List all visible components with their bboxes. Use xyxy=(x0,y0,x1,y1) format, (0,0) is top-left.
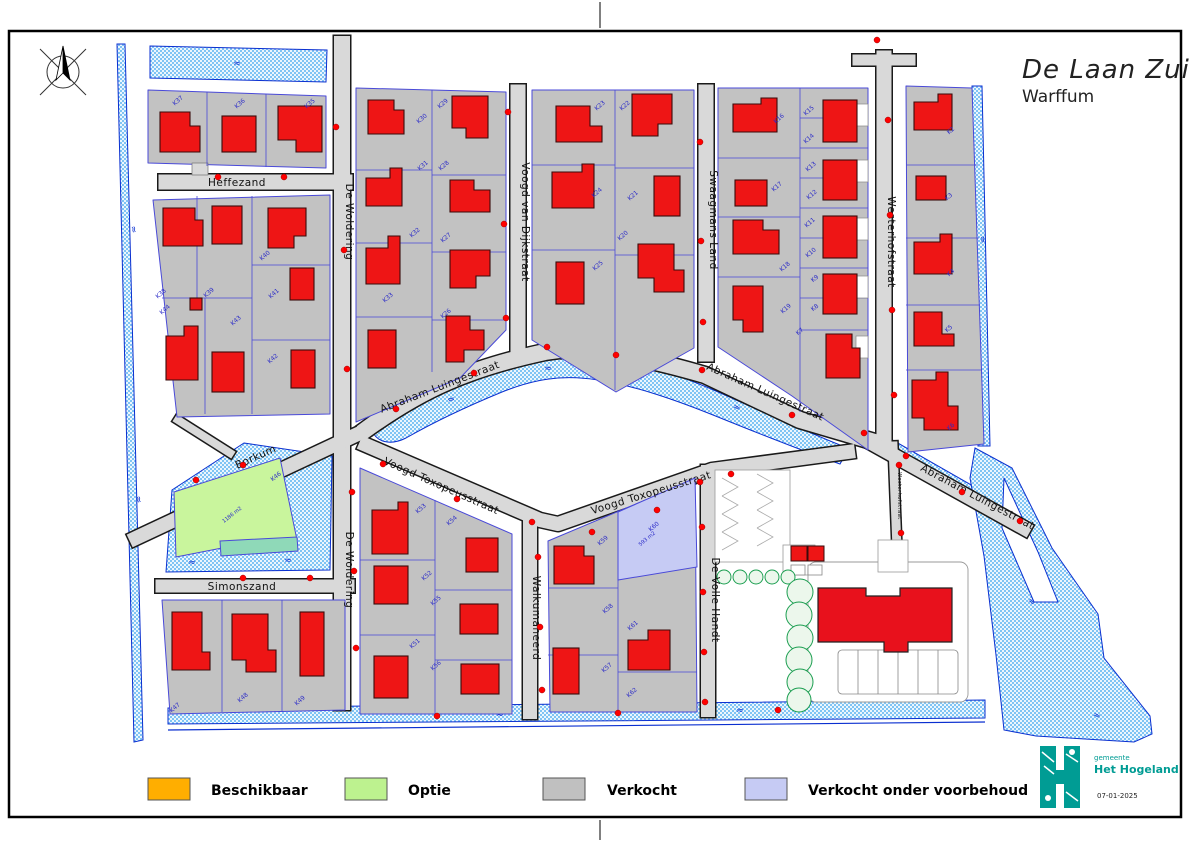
svg-text:≈: ≈ xyxy=(284,556,292,566)
legend-label-beschikbaar: Beschikbaar xyxy=(211,783,308,799)
stamp-date: 07-01-2025 xyxy=(1097,792,1138,800)
driveway-stub xyxy=(192,163,208,175)
street-westerhofstraat: Westerhofstraat xyxy=(885,196,897,288)
legend-label-verkocht: Verkocht xyxy=(607,783,677,799)
svg-text:≈: ≈ xyxy=(233,59,241,69)
svg-text:≈: ≈ xyxy=(544,364,552,374)
legend-label-optie: Optie xyxy=(408,783,451,799)
legend-label-voorbehoud: Verkocht onder voorbehoud xyxy=(808,783,1028,799)
site-plan-sheet: ≈ ≈ ≈ ≈ ≈ ≈ ≈ ≈ ≈ ≈ ≈ ≈ ≈ ≈ ≈ ≈ xyxy=(0,0,1191,842)
legend-swatch-voorbehoud xyxy=(745,778,787,800)
street-voogd-van-dijkstraat: Voogd van Dijkstraat xyxy=(519,162,531,281)
entry-stub xyxy=(878,540,908,572)
legend-swatch-verkocht xyxy=(543,778,585,800)
svg-text:≈: ≈ xyxy=(188,558,196,568)
apartment-building xyxy=(818,588,952,652)
stamp-gemeente: gemeente xyxy=(1094,754,1130,762)
garage-boxes xyxy=(791,546,824,561)
street-simonszand: Simonszand xyxy=(208,581,277,593)
street-westerhofstraat-2: Westerhofstraat xyxy=(896,472,902,520)
svg-text:≈: ≈ xyxy=(736,706,744,716)
street-de-volle-handt: De Volle Handt xyxy=(709,557,721,642)
street-swaagmans-land: Swaagmans Land xyxy=(707,170,719,270)
legend-swatch-beschikbaar xyxy=(148,778,190,800)
street-walkumaheerd: Walkumaheerd xyxy=(530,576,542,661)
legend-swatch-optie xyxy=(345,778,387,800)
stamp-name: Het Hogeland xyxy=(1094,763,1179,776)
page-title: De Laan Zuid xyxy=(1022,55,1191,85)
svg-text:≈: ≈ xyxy=(977,235,988,244)
page-subtitle: Warffum xyxy=(1022,87,1094,107)
